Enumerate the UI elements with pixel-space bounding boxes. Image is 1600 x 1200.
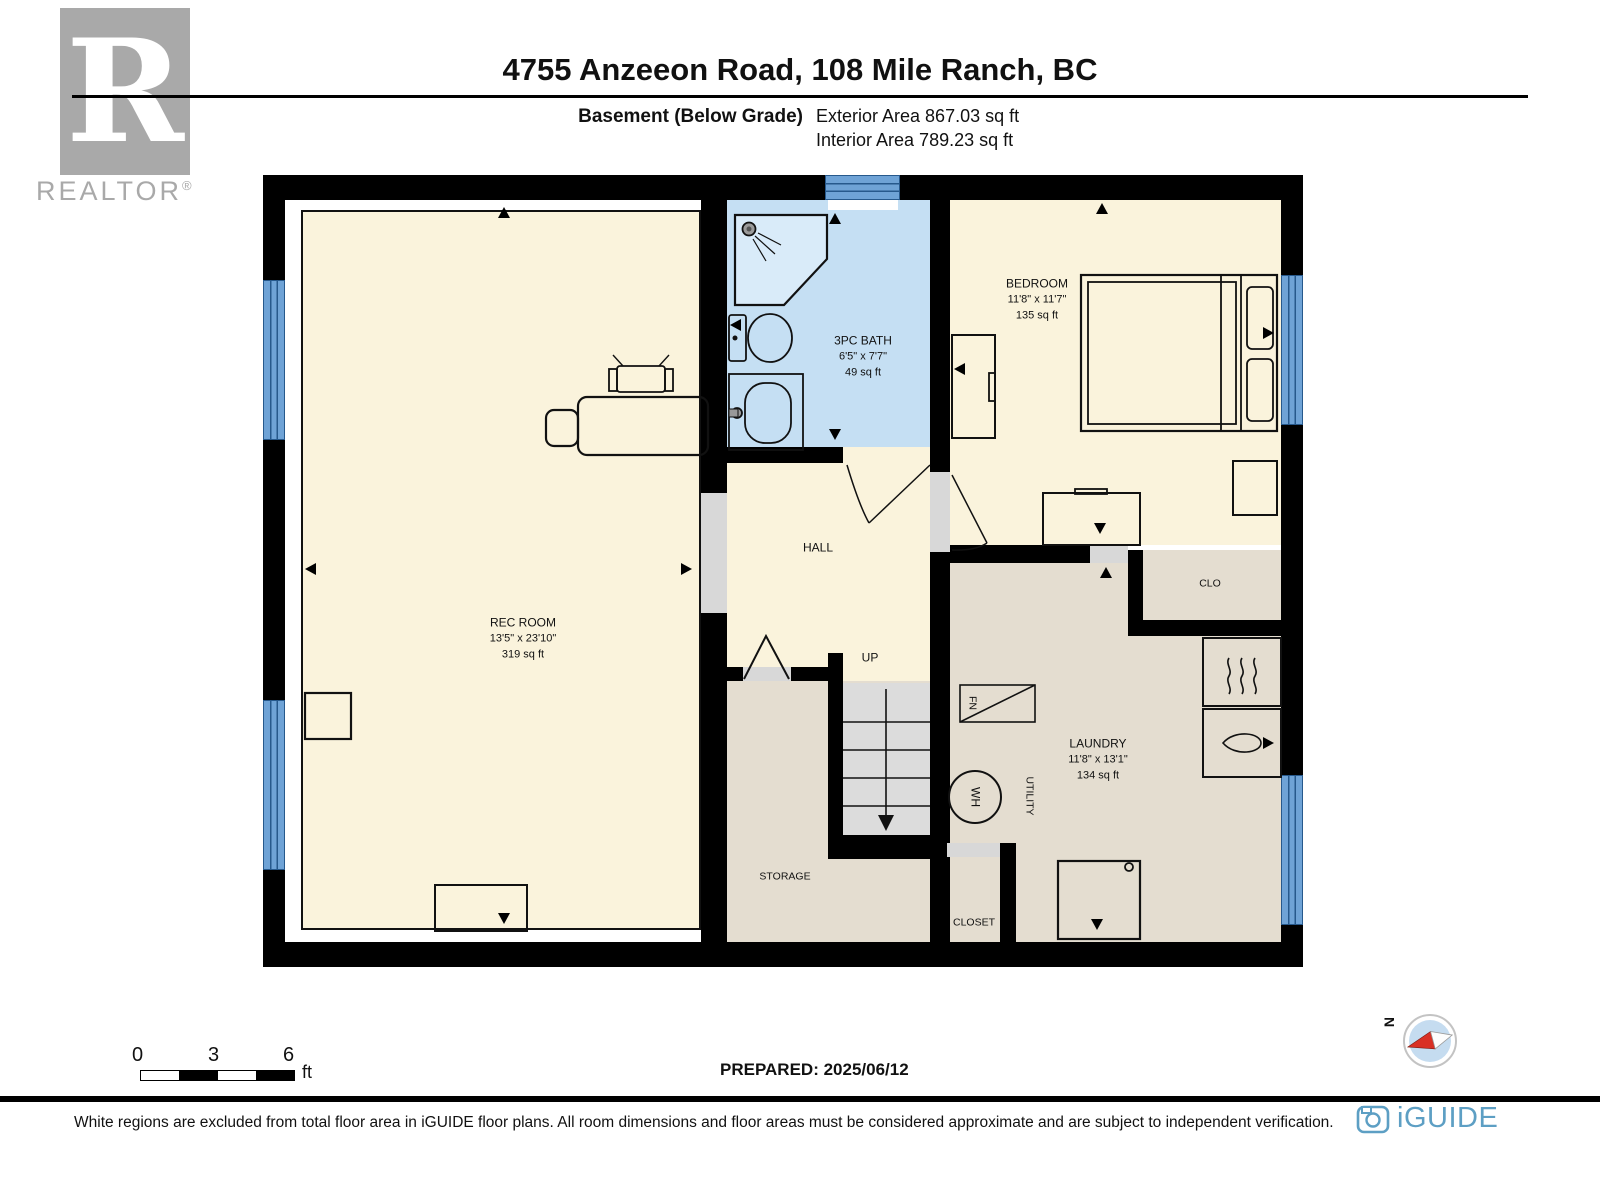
- window-bath: [825, 175, 900, 200]
- title-divider: [72, 95, 1528, 98]
- dimension-arrow-icon: [681, 563, 692, 575]
- window-bedroom: [1281, 275, 1303, 425]
- dimension-arrow-icon: [498, 913, 510, 924]
- dimension-arrow-icon: [1263, 327, 1274, 339]
- scale-unit: ft: [302, 1062, 312, 1083]
- rec-room-label: REC ROOM 13'5" x 23'10" 319 sq ft: [490, 614, 556, 663]
- dimension-arrow-icon: [829, 429, 841, 440]
- scale-label-6: 6: [283, 1044, 294, 1067]
- bath-label: 3PC BATH 6'5" x 7'7" 49 sq ft: [834, 332, 892, 381]
- realtor-wordmark: REALTOR®: [36, 176, 195, 207]
- dimension-arrow-icon: [305, 563, 316, 575]
- realtor-logo-letter: R: [66, 21, 184, 163]
- iguide-logo: iGUIDE: [1356, 1102, 1498, 1135]
- footer-disclaimer: White regions are excluded from total fl…: [74, 1114, 1334, 1132]
- wall-bedroom-laundry: [950, 545, 1090, 563]
- bedroom-floor: [950, 200, 1281, 545]
- hall-floor: [727, 463, 930, 683]
- iguide-wordmark: iGUIDE: [1397, 1102, 1498, 1135]
- opening-bedroom-laundry: [1090, 545, 1128, 563]
- wall-closet-right: [1000, 843, 1016, 942]
- stairs-up-label: UP: [862, 649, 879, 666]
- storage-label: STORAGE: [759, 869, 810, 884]
- wall-clo-bottom: [1128, 620, 1281, 636]
- hall-label: HALL: [803, 539, 833, 556]
- opening-storage-door: [743, 667, 791, 681]
- opening-closet: [947, 843, 1000, 857]
- bath-door-opening: [843, 447, 930, 463]
- wall-closet-left: [933, 843, 947, 942]
- window-left-lower: [263, 700, 285, 870]
- utility-label: UTILITY: [1021, 776, 1036, 815]
- wall-stairs-bottom: [828, 835, 935, 859]
- page-title: 4755 Anzeeon Road, 108 Mile Ranch, BC: [0, 52, 1600, 88]
- iguide-camera-icon: [1356, 1104, 1390, 1134]
- wall-bath-hall: [727, 447, 843, 463]
- window-laundry: [1281, 775, 1303, 925]
- bath-floor: [727, 200, 930, 447]
- exterior-area: Exterior Area 867.03 sq ft: [816, 106, 1019, 127]
- wall-bottom: [263, 942, 1303, 967]
- scale-label-0: 0: [132, 1044, 143, 1067]
- water-heater-label: WH: [966, 787, 983, 807]
- dimension-arrow-icon: [1100, 567, 1112, 578]
- prepared-date: PREPARED: 2025/06/12: [720, 1060, 909, 1080]
- bedroom-label: BEDROOM 11'8" x 11'7" 135 sq ft: [1006, 275, 1068, 324]
- dimension-arrow-icon: [498, 207, 510, 218]
- stairs-floor: [843, 683, 930, 835]
- wall-top: [263, 175, 1303, 200]
- scale-label-3: 3: [208, 1044, 219, 1067]
- closet-label: CLOSET: [953, 915, 995, 930]
- laundry-label: LAUNDRY 11'8" x 13'1" 134 sq ft: [1068, 735, 1128, 784]
- dimension-arrow-icon: [1096, 203, 1108, 214]
- rec-room-floor: [301, 210, 701, 930]
- wall-hall-storage-b: [791, 667, 828, 681]
- opening-rec-hall: [701, 493, 727, 613]
- clo-label: CLO: [1199, 576, 1221, 591]
- realtor-logo: R: [60, 8, 190, 175]
- wall-stairs-left: [828, 653, 843, 859]
- dimension-arrow-icon: [1091, 919, 1103, 930]
- opening-bedroom-door: [930, 472, 950, 552]
- dimension-arrow-icon: [730, 319, 741, 331]
- floor-name: Basement (Below Grade): [380, 106, 803, 128]
- scale-bar: [140, 1070, 295, 1081]
- floor-plan-page: R REALTOR® 4755 Anzeeon Road, 108 Mile R…: [0, 0, 1600, 1200]
- furnace-label: FN: [964, 696, 979, 710]
- dimension-arrow-icon: [1263, 737, 1274, 749]
- dimension-arrow-icon: [1094, 523, 1106, 534]
- window-sill: [828, 200, 898, 210]
- dimension-arrow-icon: [939, 705, 950, 717]
- wall-clo-left: [1128, 550, 1143, 620]
- wall-hall-storage-a: [727, 667, 743, 681]
- wall-hall-bedroom: [930, 200, 950, 942]
- floor-plan: REC ROOM 13'5" x 23'10" 319 sq ft 3PC BA…: [263, 175, 1303, 967]
- window-left-upper: [263, 280, 285, 440]
- compass-icon: [1392, 1006, 1466, 1076]
- registered-mark: ®: [182, 178, 195, 193]
- dimension-arrow-icon: [829, 213, 841, 224]
- dimension-arrow-icon: [954, 363, 965, 375]
- interior-area: Interior Area 789.23 sq ft: [816, 130, 1013, 151]
